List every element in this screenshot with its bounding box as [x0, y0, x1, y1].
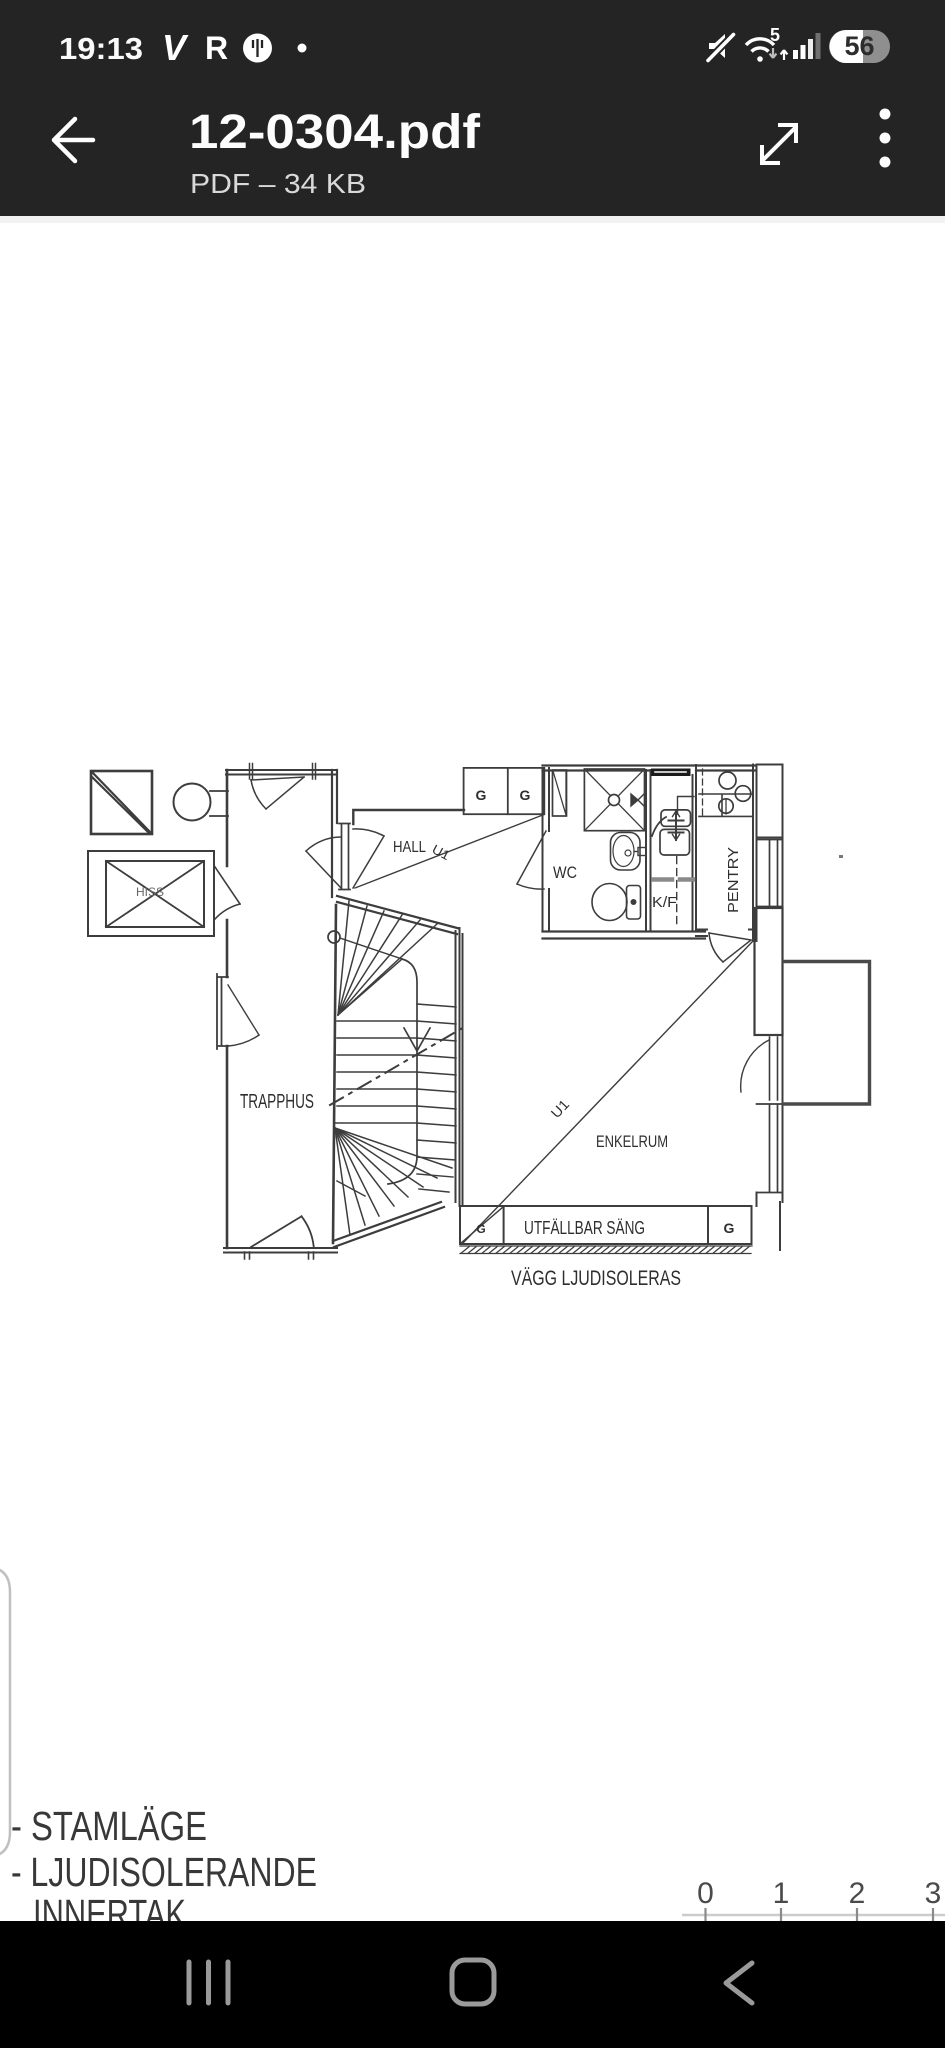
- svg-text:PDF – 34 KB: PDF – 34 KB: [190, 168, 366, 199]
- svg-text:G: G: [520, 787, 531, 803]
- svg-text:56: 56: [844, 31, 874, 61]
- svg-text:G: G: [724, 1220, 735, 1236]
- svg-text:0: 0: [697, 1877, 714, 1910]
- svg-text:G: G: [476, 787, 487, 803]
- svg-text:HISS: HISS: [136, 885, 164, 899]
- svg-text:HALL: HALL: [393, 839, 426, 856]
- svg-text:PENTRY: PENTRY: [725, 847, 742, 913]
- svg-text:ENKELRUM: ENKELRUM: [596, 1132, 668, 1151]
- svg-text:VÄGG LJUDISOLERAS: VÄGG LJUDISOLERAS: [511, 1267, 681, 1290]
- svg-text:TRAPPHUS: TRAPPHUS: [240, 1091, 314, 1113]
- svg-text:UTFÄLLBAR SÄNG: UTFÄLLBAR SÄNG: [524, 1218, 645, 1238]
- svg-text:19:13: 19:13: [59, 31, 143, 66]
- svg-text:12-0304.pdf: 12-0304.pdf: [189, 106, 481, 159]
- svg-text:G: G: [476, 1222, 485, 1236]
- svg-text:V: V: [162, 27, 189, 68]
- svg-text:3: 3: [925, 1877, 942, 1910]
- svg-text:K/F: K/F: [652, 894, 677, 911]
- svg-text:1: 1: [773, 1877, 790, 1910]
- svg-text:- STAMLÄGE: - STAMLÄGE: [11, 1803, 207, 1849]
- svg-text:2: 2: [849, 1877, 866, 1910]
- svg-text:WC: WC: [553, 863, 577, 882]
- svg-text:5: 5: [770, 25, 780, 45]
- svg-text:R: R: [205, 30, 228, 66]
- svg-text:- LJUDISOLERANDE: - LJUDISOLERANDE: [11, 1849, 317, 1895]
